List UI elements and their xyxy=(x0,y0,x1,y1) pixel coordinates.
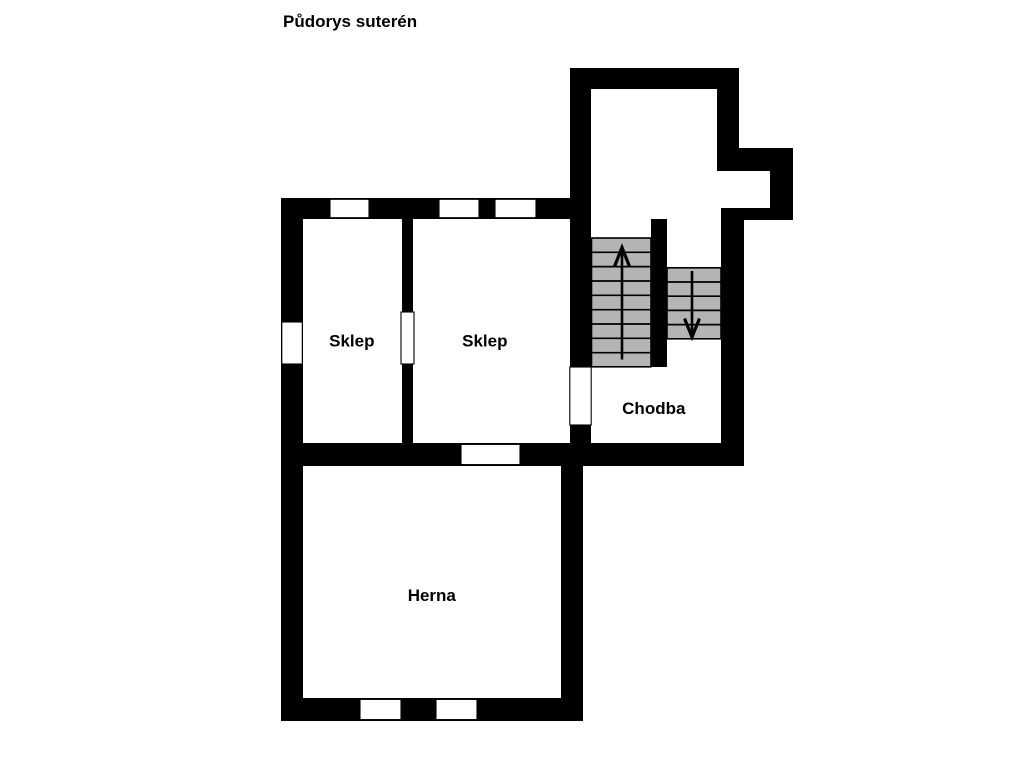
svg-text:Sklep: Sklep xyxy=(462,332,507,351)
svg-text:Chodba: Chodba xyxy=(622,399,686,418)
svg-text:Půdorys suterén: Půdorys suterén xyxy=(283,12,417,31)
svg-text:Herna: Herna xyxy=(408,586,457,605)
svg-text:Sklep: Sklep xyxy=(329,332,374,351)
